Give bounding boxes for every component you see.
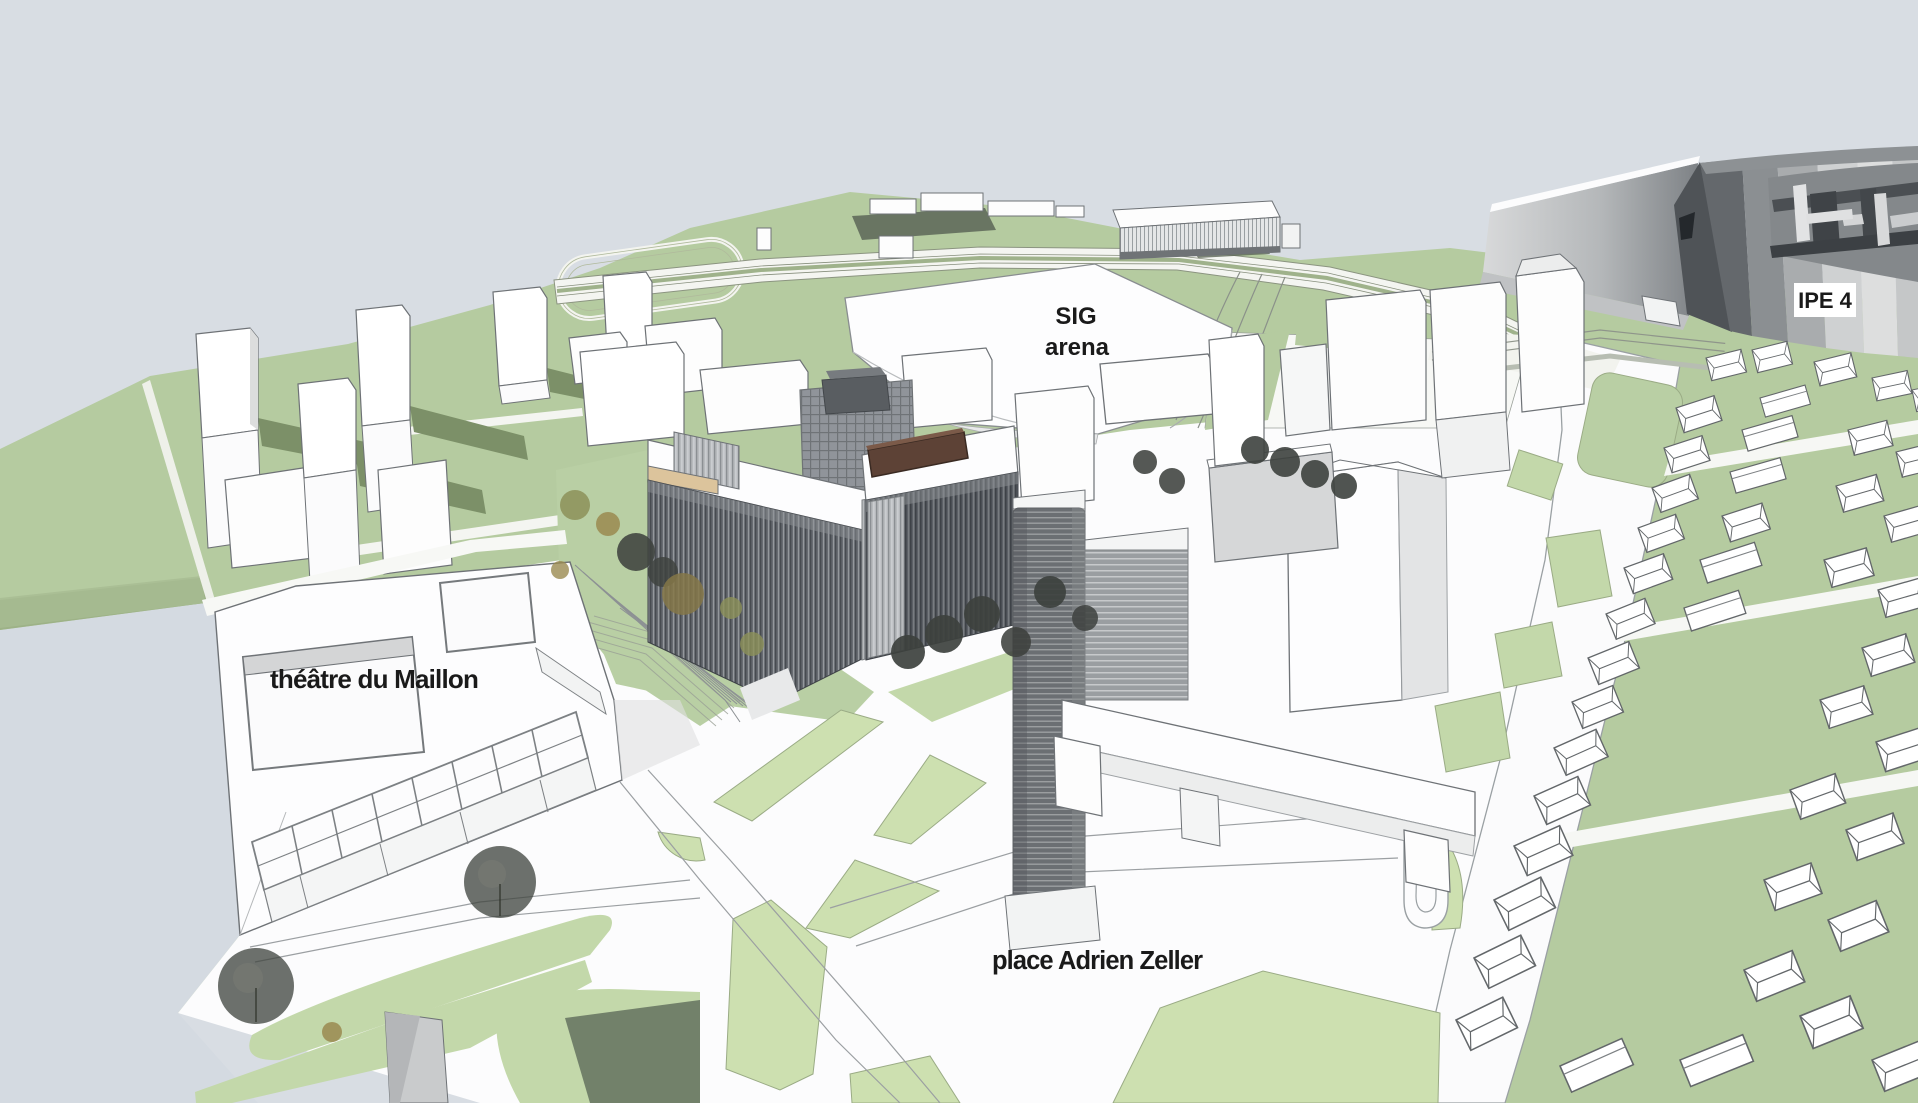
svg-text:SIG: SIG [1055,303,1096,330]
svg-text:théâtre du Maillon: théâtre du Maillon [270,664,478,694]
svg-text:IPE 4: IPE 4 [1798,288,1853,313]
svg-text:place Adrien Zeller: place Adrien Zeller [992,947,1203,975]
svg-text:arena: arena [1045,334,1110,361]
